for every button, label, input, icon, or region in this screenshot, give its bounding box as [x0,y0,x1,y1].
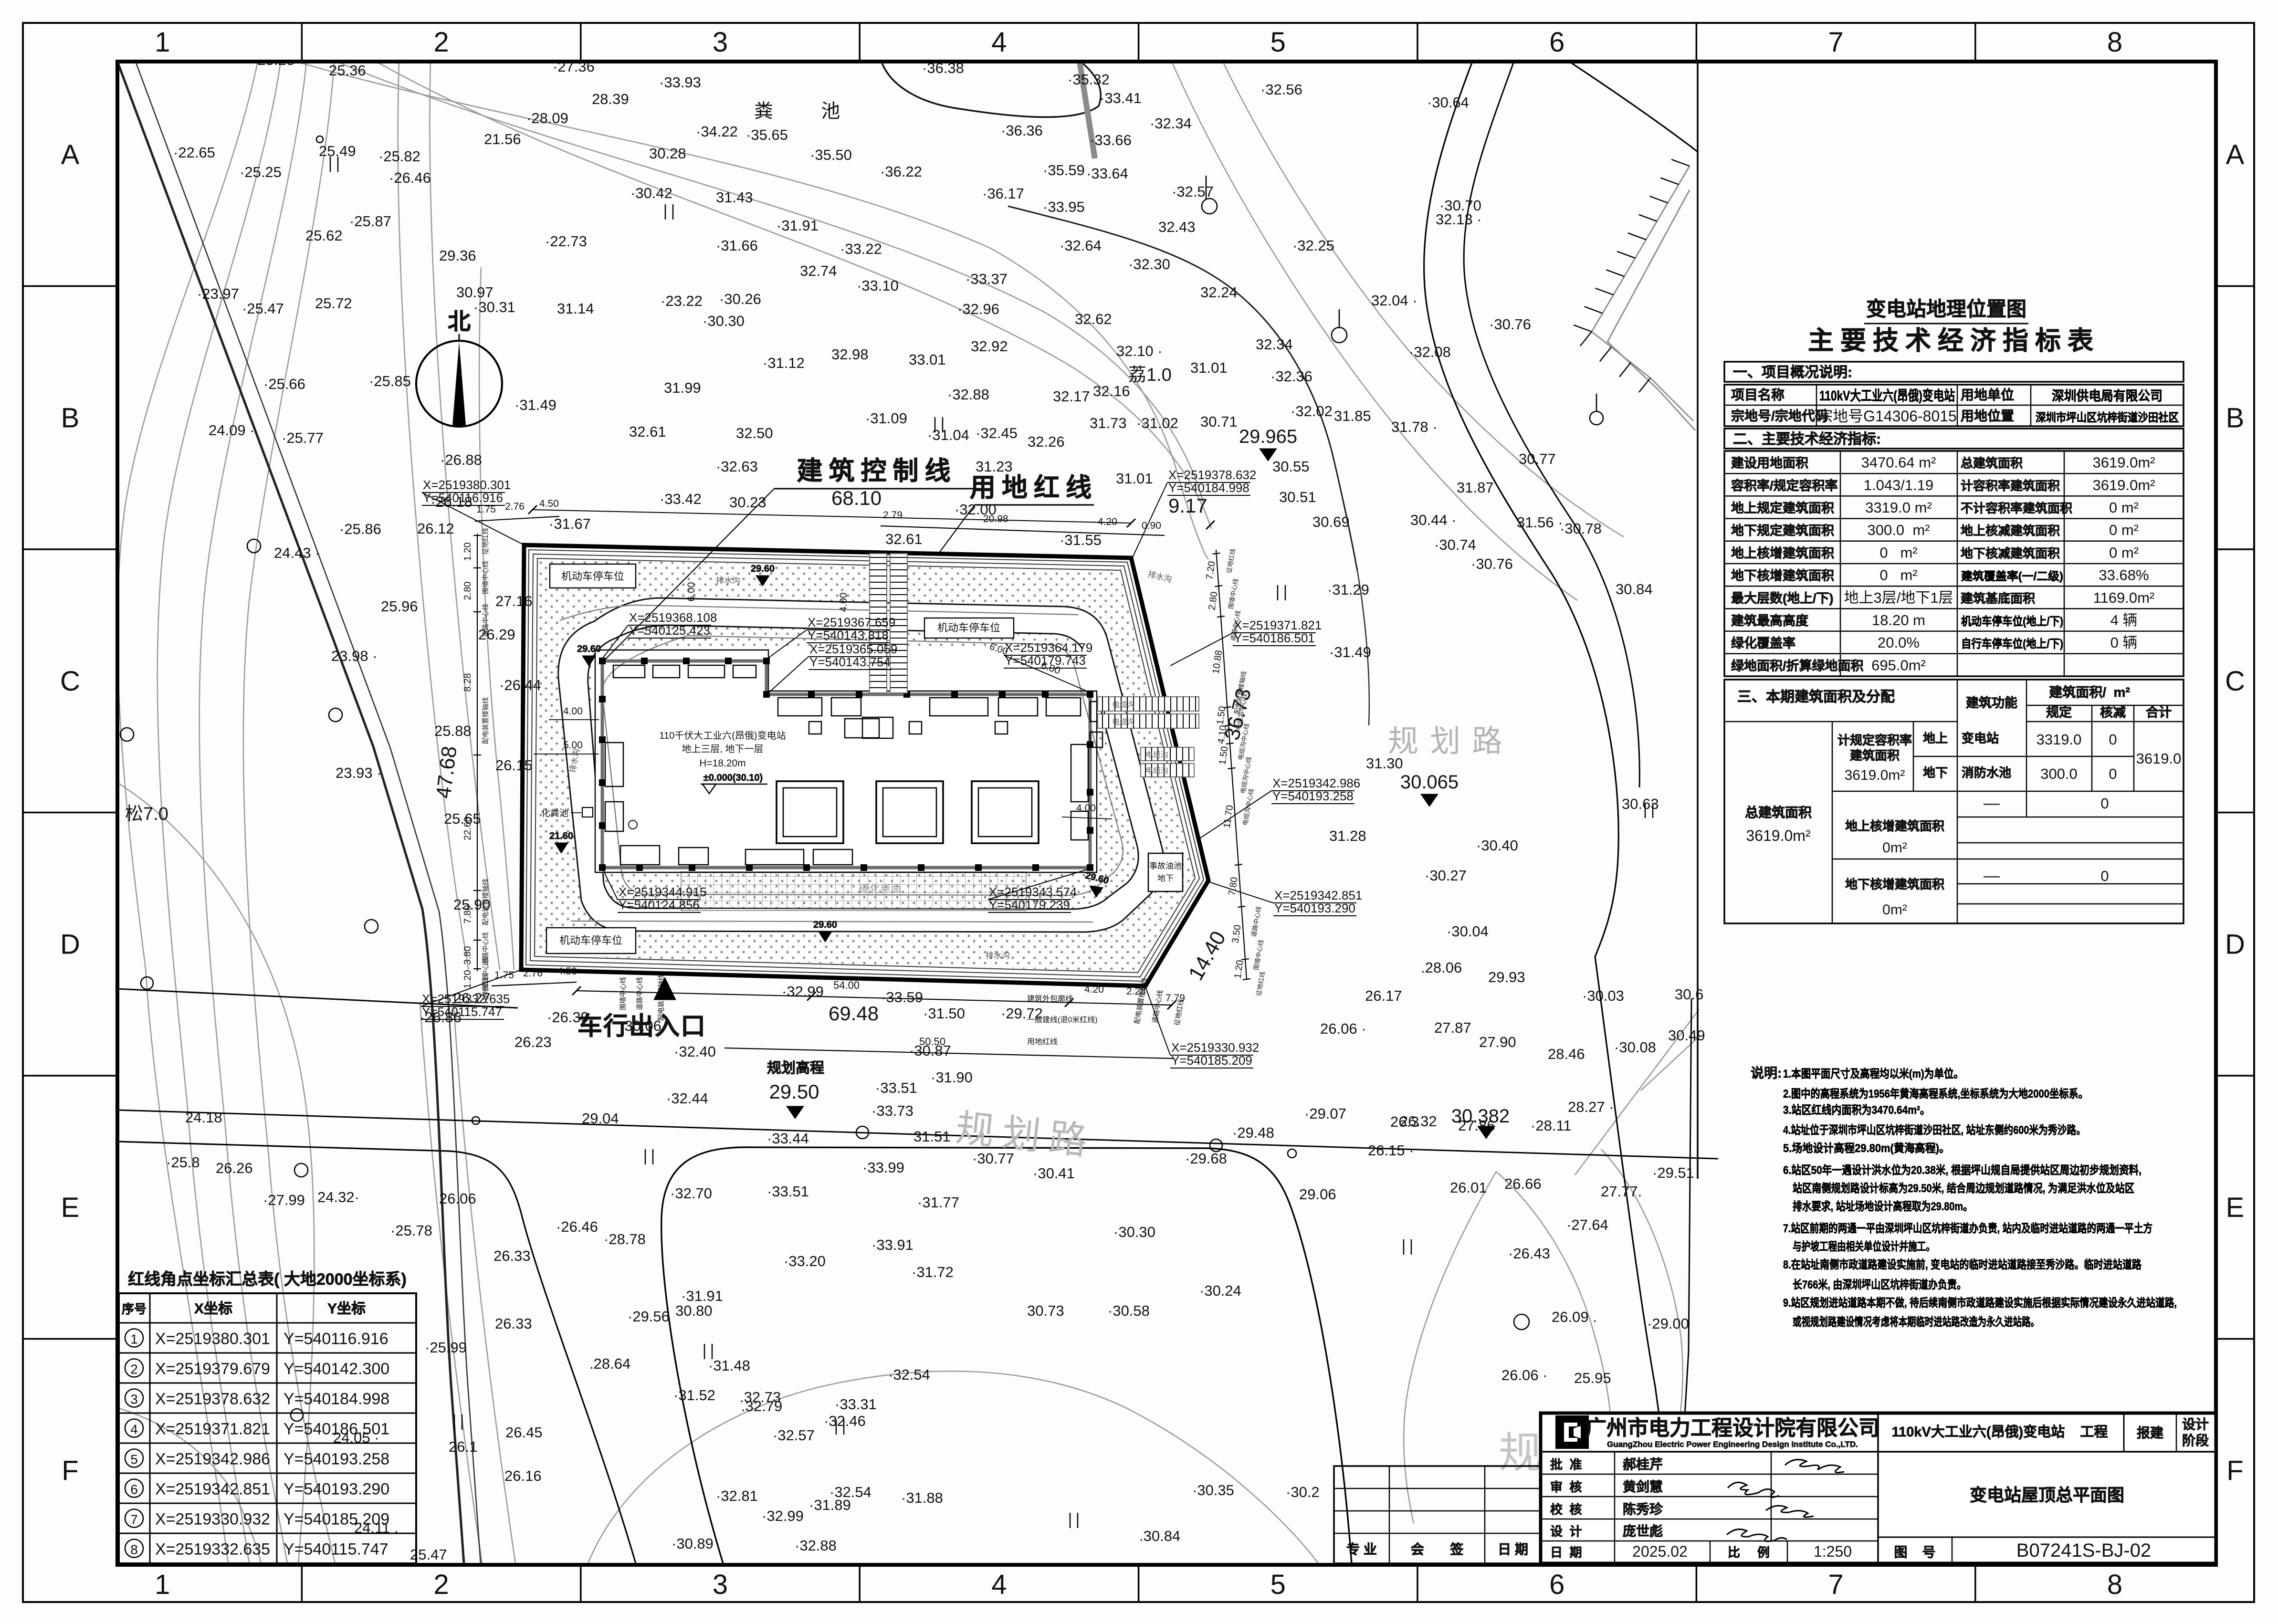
svg-text:建筑面积: 建筑面积 [1850,748,1900,763]
svg-text:变电站地理位置图: 变电站地理位置图 [1866,298,2026,320]
svg-text:30.71: 30.71 [1200,413,1238,430]
svg-text:27.87: 27.87 [1434,1019,1471,1036]
svg-text:32.98: 32.98 [831,346,869,363]
svg-text:·31.12: ·31.12 [763,355,805,371]
svg-text:·34.22: ·34.22 [696,123,738,140]
svg-text:·32.30: ·32.30 [1128,256,1170,272]
svg-text:·31.67: ·31.67 [549,515,591,532]
svg-text:D: D [60,929,80,960]
svg-text:·31.72: ·31.72 [912,1264,954,1280]
svg-text:26.12: 26.12 [417,520,454,537]
svg-text:26.23: 26.23 [514,1034,552,1050]
svg-text:25.95: 25.95 [1574,1370,1611,1386]
svg-text:·26.88: ·26.88 [440,451,482,468]
svg-text:用地位置: 用地位置 [1961,408,2014,423]
svg-text:·25.8: ·25.8 [166,1154,200,1171]
svg-text:X=2519342.851: X=2519342.851 [1274,888,1362,902]
svg-text:·22.73: ·22.73 [545,233,587,250]
svg-text:用地红线: 用地红线 [970,473,1098,502]
svg-text:X=2519364.179: X=2519364.179 [1005,640,1092,655]
svg-text:日 期: 日 期 [1498,1542,1528,1557]
svg-text:6.站区50年一遇设计洪水位为20.38米, 根据坪山规自局: 6.站区50年一遇设计洪水位为20.38米, 根据坪山规自局提供站区周边初步规划… [1783,1163,2142,1177]
svg-text:配电装置楼轴线: 配电装置楼轴线 [482,697,489,744]
svg-text:用地单位: 用地单位 [1961,387,2014,402]
svg-text:23.93 ·: 23.93 · [336,765,382,781]
svg-text:30.77: 30.77 [1519,451,1556,467]
svg-text:B07241S-BJ-02: B07241S-BJ-02 [2016,1540,2151,1561]
svg-text:X=2519371.821: X=2519371.821 [155,1420,270,1438]
svg-text:建筑控制线: 建筑控制线 [797,457,957,485]
svg-text:·25.77: ·25.77 [282,430,324,446]
svg-text:32.50: 32.50 [736,425,773,441]
svg-text:·35.65: ·35.65 [746,126,788,143]
svg-text:地下核减建筑面积: 地下核减建筑面积 [1961,546,2060,560]
svg-text:0 m²: 0 m² [2109,499,2139,516]
svg-text:机动车停车位(地上/下): 机动车停车位(地上/下) [1961,615,2063,628]
svg-text:3: 3 [713,27,728,58]
svg-text:1: 1 [130,1332,138,1347]
svg-text:·32.81: ·32.81 [716,1488,758,1504]
svg-text:X=2519368.108: X=2519368.108 [629,610,717,625]
svg-text:26.17: 26.17 [1365,987,1402,1004]
svg-text:26.45: 26.45 [505,1424,543,1441]
svg-text:图 号: 图 号 [1894,1545,1935,1560]
svg-text:30.63: 30.63 [1622,796,1659,812]
svg-text:合计: 合计 [2146,705,2172,720]
svg-text:用地红线: 用地红线 [1027,1037,1058,1046]
svg-text:设计: 设计 [2182,1417,2209,1432]
svg-text:·25.82: ·25.82 [378,148,420,165]
svg-text:30.065: 30.065 [1400,772,1459,793]
svg-text:9.17: 9.17 [1168,494,1207,517]
svg-text:·31.49: ·31.49 [1329,644,1371,660]
svg-text:25.72: 25.72 [315,295,352,312]
svg-text:31.56 ·: 31.56 · [1517,514,1563,531]
svg-text:·29.56: ·29.56 [628,1308,670,1325]
svg-text:4.50: 4.50 [539,498,559,509]
svg-text:32.13 ·: 32.13 · [1436,211,1482,228]
svg-text:69.48: 69.48 [829,1002,879,1025]
svg-text:25.49: 25.49 [319,143,356,159]
svg-text:0m²: 0m² [1882,840,1907,856]
svg-text:·31.55: ·31.55 [1060,532,1102,548]
svg-text:地下规定建筑面积: 地下规定建筑面积 [1731,523,1834,538]
svg-text:·32.36: ·32.36 [1270,368,1312,385]
svg-text:X=2519330.932: X=2519330.932 [1171,1040,1259,1055]
svg-text:4.站址位于深圳市坪山区坑梓街道沙田社区, 站址东侧约600: 4.站址位于深圳市坪山区坑梓街道沙田社区, 站址东侧约600米为秀沙路。 [1783,1123,2086,1137]
svg-text:0: 0 [2100,795,2109,812]
svg-text:机动车停车位: 机动车停车位 [937,622,1000,634]
svg-text:北: 北 [448,309,471,335]
svg-text:·27.99: ·27.99 [263,1192,305,1208]
svg-text:X=2519332.635: X=2519332.635 [155,1540,270,1559]
svg-text:·32.88: ·32.88 [947,386,989,403]
svg-text:3: 3 [713,1569,728,1600]
svg-text:32.16: 32.16 [1093,383,1130,399]
svg-text:变电站: 变电站 [1962,731,1999,745]
svg-text:26.26: 26.26 [216,1160,253,1176]
svg-text:Y=540185.209: Y=540185.209 [283,1510,389,1529]
svg-text:·32.25: ·32.25 [1292,237,1334,254]
svg-text:报建: 报建 [2137,1425,2163,1440]
svg-text:说明:: 说明: [1751,1066,1782,1080]
svg-text:·33.51: ·33.51 [875,1079,917,1096]
svg-text:25.36: 25.36 [329,62,366,79]
svg-text:30.73: 30.73 [1027,1302,1064,1319]
svg-text:·25.87: ·25.87 [349,213,391,230]
svg-text:·32.44: ·32.44 [666,1090,708,1107]
svg-text:·27.64: ·27.64 [1566,1216,1608,1233]
svg-text:A: A [61,139,80,170]
svg-text:0 m²: 0 m² [2109,522,2139,538]
svg-text:建设用地面积: 建设用地面积 [1731,456,1808,471]
svg-text:3619.0m²: 3619.0m² [2093,477,2155,493]
svg-text:·32.96: ·32.96 [957,301,999,317]
svg-text:2.图中的高程系统为1956年黄海高程系统,坐标系统为大地2: 2.图中的高程系统为1956年黄海高程系统,坐标系统为大地2000坐标系。 [1783,1087,2088,1100]
svg-text:20.0%: 20.0% [1878,634,1920,651]
svg-text:31.99: 31.99 [664,379,701,396]
svg-text:8.28: 8.28 [462,673,473,692]
svg-text:·31.29: ·31.29 [1327,581,1369,598]
svg-text:.28.64: .28.64 [589,1355,630,1372]
svg-text:·23.97: ·23.97 [197,285,239,302]
svg-text:X=2519332.635: X=2519332.635 [422,992,510,1006]
svg-text:25.96: 25.96 [381,598,418,615]
svg-text:22.60: 22.60 [462,817,473,840]
svg-text:专 业: 专 业 [1346,1542,1377,1557]
svg-text:庞世彪: 庞世彪 [1623,1524,1663,1539]
svg-text:阶段: 阶段 [2182,1433,2209,1448]
svg-text:26.06 ·: 26.06 · [1501,1367,1548,1383]
svg-text:4.20: 4.20 [1098,516,1117,527]
svg-text:·30.24: ·30.24 [1199,1282,1241,1299]
svg-text:0: 0 [2109,731,2117,748]
svg-text:与护坡工程由相关单位设计并施工。: 与护坡工程由相关单位设计并施工。 [1793,1240,1935,1253]
svg-text:31.28: 31.28 [1329,828,1366,844]
svg-text:·29.48: ·29.48 [1232,1124,1274,1141]
svg-text:28.39: 28.39 [592,91,629,107]
svg-text:2.76: 2.76 [523,968,543,979]
svg-text:26.3: 26.3 [1390,1113,1419,1130]
svg-text:30.44 ·: 30.44 · [1410,512,1457,528]
svg-text:·30.04: ·30.04 [1447,923,1489,940]
svg-text:·31.04: ·31.04 [927,427,969,443]
svg-text:2.80: 2.80 [462,582,473,600]
svg-text:规划路: 规划路 [1388,724,1514,758]
svg-text:26.06: 26.06 [439,1190,476,1207]
svg-text:H=18.20m: H=18.20m [699,758,745,769]
svg-text:·30.42: ·30.42 [630,185,672,201]
svg-text:X=2519378.632: X=2519378.632 [1168,468,1256,482]
svg-text:32.10 ·: 32.10 · [1116,343,1163,359]
svg-text:C: C [60,666,80,697]
svg-text:·31.91: ·31.91 [777,217,819,234]
svg-text:26.1: 26.1 [449,1438,477,1455]
svg-text:·33.20: ·33.20 [784,1253,826,1269]
svg-text:3619.0m²: 3619.0m² [1746,827,1811,844]
svg-text:Y=540116.916: Y=540116.916 [283,1330,388,1348]
svg-text:·32.56: ·32.56 [1260,81,1302,98]
svg-text:32.17: 32.17 [1053,388,1090,405]
svg-text:2: 2 [433,1569,449,1600]
svg-text:7.站区前期的两通一平由深圳坪山区坑梓街道办负责, 站内及临: 7.站区前期的两通一平由深圳坪山区坑梓街道办负责, 站内及临时进站道路的两通一平… [1783,1222,2152,1235]
svg-text:·30.26: ·30.26 [719,291,761,307]
svg-text:计规定容积率: 计规定容积率 [1837,733,1912,747]
svg-text:地上规定建筑面积: 地上规定建筑面积 [1731,501,1834,515]
svg-text:消防水池: 消防水池 [1962,765,2011,780]
svg-text:松7.0: 松7.0 [125,804,168,824]
svg-text:3619.0m²: 3619.0m² [1845,767,1905,783]
svg-text:一般建线(退0米红线): 一般建线(退0米红线) [1027,1016,1098,1024]
svg-text:31.78 ·: 31.78 · [1391,419,1438,435]
svg-text:·33.73: ·33.73 [871,1102,913,1119]
svg-text:4: 4 [991,1569,1007,1600]
svg-text:·31.89: ·31.89 [809,1497,851,1513]
svg-text:·28.78: ·28.78 [604,1231,646,1247]
svg-text:8: 8 [2107,27,2122,58]
svg-text:项目名称: 项目名称 [1731,388,1785,402]
svg-text:·33.10: ·33.10 [857,277,899,294]
svg-text:·30.76: ·30.76 [1489,316,1531,333]
svg-text:29.50: 29.50 [769,1080,819,1103]
svg-text:30.69: 30.69 [1312,513,1350,530]
svg-text:·30.30: ·30.30 [1113,1224,1155,1240]
svg-text:X=2519330.932: X=2519330.932 [155,1510,270,1529]
svg-text:规划高程: 规划高程 [767,1060,824,1076]
svg-text:计容积率建筑面积: 计容积率建筑面积 [1961,479,2060,493]
svg-text:地上核增建筑面积: 地上核增建筑面积 [1845,819,1944,833]
svg-text:32.04 ·: 32.04 · [1371,292,1417,309]
svg-text:·30.03: ·30.03 [1582,987,1624,1004]
svg-text:695.0m²: 695.0m² [1871,657,1926,673]
svg-text:·33.59: ·33.59 [881,989,923,1006]
svg-text:X=2519379.679: X=2519379.679 [155,1360,270,1378]
svg-text:27.90: 27.90 [1479,1034,1516,1050]
svg-text:硬化屋面: 硬化屋面 [859,883,901,895]
svg-text:建筑外包廓线: 建筑外包廓线 [1027,995,1073,1003]
svg-text:·33.31: ·33.31 [835,1396,877,1413]
svg-text:4.00: 4.00 [838,593,849,612]
svg-text:排水沟: 排水沟 [716,576,740,586]
svg-text:C: C [2225,666,2245,697]
svg-text:·31.52: ·31.52 [673,1387,715,1404]
svg-text:30.51: 30.51 [1279,489,1316,505]
svg-text:31.85: 31.85 [1334,408,1371,424]
svg-text:·31.02: ·31.02 [1136,415,1178,431]
svg-text:27.77.: 27.77. [1601,1183,1642,1200]
svg-text:9.站区规划进站道路本期不做, 待后续南侧市政道路建设实施后: 9.站区规划进站道路本期不做, 待后续南侧市政道路建设实施后根据实际情况建设永久… [1783,1296,2177,1310]
svg-text:29.04: 29.04 [582,1110,619,1127]
svg-text:3.80: 3.80 [462,946,473,965]
svg-text:配电装置楼轴线: 配电装置楼轴线 [482,879,489,925]
svg-text:Y=540115.747: Y=540115.747 [283,1540,388,1559]
svg-text:·35.32: ·35.32 [1068,71,1110,88]
svg-text:50.50: 50.50 [919,1036,945,1048]
svg-text:·29.51: ·29.51 [1652,1164,1694,1181]
svg-text:0.90: 0.90 [1142,520,1161,531]
svg-text:.32.79: .32.79 [741,1398,782,1414]
svg-text:3319.0: 3319.0 [2037,731,2082,748]
svg-text:54.00: 54.00 [833,979,860,991]
svg-text:·32.40: ·32.40 [674,1043,716,1060]
svg-text:29.60: 29.60 [577,644,601,654]
svg-text:主要技术经济指标表: 主要技术经济指标表 [1808,326,2100,355]
svg-text:X=2519371.821: X=2519371.821 [1234,618,1322,632]
svg-text:0 m²: 0 m² [1879,544,1917,561]
svg-text:1:250: 1:250 [1814,1543,1852,1560]
svg-text:道路中心线: 道路中心线 [636,977,643,1010]
svg-text:33.01: 33.01 [909,351,946,368]
svg-text:·30.30: ·30.30 [703,313,745,329]
svg-text:·33.91: ·33.91 [871,1236,913,1253]
svg-text:·31.90: ·31.90 [931,1069,973,1086]
svg-text:4.00: 4.00 [563,706,583,717]
svg-text:2.79: 2.79 [883,510,903,521]
svg-text:日 期: 日 期 [1550,1545,1582,1560]
svg-text:·32.57: ·32.57 [1172,183,1214,200]
svg-text:31.30: 31.30 [1366,755,1403,772]
svg-text:·30.31: ·30.31 [473,299,515,315]
svg-text:GuangZhou Electric Power Engin: GuangZhou Electric Power Engineering Des… [1607,1440,1858,1449]
svg-text:·22.65: ·22.65 [173,144,215,161]
svg-text:序号: 序号 [122,1302,147,1316]
svg-text:32.74: 32.74 [800,262,837,279]
svg-text:一、项目概况说明:: 一、项目概况说明: [1733,365,1852,380]
svg-text:110kV大工业六(昂俄)变电站 工程: 110kV大工业六(昂俄)变电站 工程 [1892,1424,2108,1440]
svg-text:8: 8 [130,1542,138,1557]
svg-text:X=2519344.915: X=2519344.915 [619,885,706,899]
svg-text:设 计: 设 计 [1550,1524,1582,1539]
svg-text:排水沟: 排水沟 [986,951,1010,960]
svg-text:·31.66: ·31.66 [716,237,758,254]
svg-text:总建筑面积: 总建筑面积 [1961,456,2023,471]
svg-text:·25.99: ·25.99 [425,1339,467,1356]
svg-text:道路中心线: 道路中心线 [482,604,489,637]
svg-text:排水要求, 站址场地设计高程取为29.80m。: 排水要求, 站址场地设计高程取为29.80m。 [1793,1200,1973,1213]
svg-text:·33.22: ·33.22 [840,241,882,257]
svg-text:·33.93: ·33.93 [659,74,701,91]
svg-text:24.43 ·: 24.43 · [274,545,320,561]
svg-text:·32.99: ·32.99 [782,983,824,1000]
svg-text:宗地号G14306-8015: 宗地号G14306-8015 [1817,408,1957,425]
svg-text:1.本图平面尺寸及高程均以米(m)为单位。: 1.本图平面尺寸及高程均以米(m)为单位。 [1783,1067,1963,1080]
svg-text:5.场地设计高程29.80m(黄海高程)。: 5.场地设计高程29.80m(黄海高程)。 [1783,1142,1950,1155]
svg-text:·32.46: ·32.46 [824,1413,866,1429]
svg-text:·26.46: ·26.46 [389,169,431,186]
svg-text:Y坐标: Y坐标 [327,1301,366,1317]
svg-text:围墙中心线: 围墙中心线 [482,561,489,594]
svg-text:31.51: 31.51 [913,1128,951,1145]
svg-text:Y=540184.998: Y=540184.998 [283,1390,389,1408]
svg-text:·23.22: ·23.22 [661,293,703,309]
svg-text:2: 2 [130,1362,138,1377]
svg-text:·30.40: ·30.40 [1476,837,1518,854]
svg-text:建筑面积/ m²: 建筑面积/ m² [2049,685,2130,700]
svg-text:地下核增建筑面积: 地下核增建筑面积 [1845,877,1944,891]
svg-text:·25.25: ·25.25 [240,164,282,180]
svg-text:X=2519378.632: X=2519378.632 [155,1390,270,1408]
svg-text:29.93: 29.93 [1488,969,1525,985]
svg-text:3: 3 [130,1392,138,1407]
svg-text:4.00: 4.00 [1076,803,1096,814]
svg-text:最大层数(地上/下): 最大层数(地上/下) [1731,591,1833,606]
svg-text:三、本期建筑面积及分配: 三、本期建筑面积及分配 [1737,689,1895,705]
svg-text:8.在站址南侧市政道路建设实施前, 变电站的临时进站道路接至: 8.在站址南侧市政道路建设实施前, 变电站的临时进站道路接至秀沙路。临时进站道路 [1783,1258,2142,1271]
svg-text:地上三层, 地下一层: 地上三层, 地下一层 [682,744,763,754]
svg-text:3619.0: 3619.0 [2136,750,2182,767]
svg-text:2025.02: 2025.02 [1632,1543,1688,1560]
svg-text:26.06 ·: 26.06 · [1320,1020,1366,1037]
svg-text:地下: 地下 [1157,874,1174,883]
svg-text:·25.47: ·25.47 [242,300,284,317]
svg-text:陈秀珍: 陈秀珍 [1623,1501,1663,1517]
svg-text:4: 4 [130,1422,138,1437]
svg-text:建筑基底面积: 建筑基底面积 [1961,591,2035,606]
svg-text:·32.08: ·32.08 [1409,344,1451,360]
svg-text:1: 1 [155,1569,170,1600]
svg-text:·25.78: ·25.78 [390,1222,432,1239]
svg-text:地上核增建筑面积: 地上核增建筑面积 [1731,545,1834,560]
svg-text:2: 2 [433,27,449,58]
svg-text:7: 7 [1828,27,1843,58]
svg-text:地上: 地上 [1923,731,1948,745]
svg-text:6.00: 6.00 [686,582,697,602]
svg-text:.30.84: .30.84 [1139,1528,1180,1544]
svg-text:·30.64: ·30.64 [1427,94,1469,111]
svg-text:事故油池: 事故油池 [1149,861,1182,870]
svg-text:·36.17: ·36.17 [982,185,1024,202]
svg-text:荔1.0: 荔1.0 [1128,365,1172,385]
svg-text:·32.00: ·32.00 [955,501,997,518]
svg-text:0 辆: 0 辆 [2110,634,2138,651]
svg-text:容积率/规定容积率: 容积率/规定容积率 [1731,478,1838,493]
svg-text:1.20: 1.20 [462,970,473,989]
svg-text:4: 4 [991,27,1007,58]
svg-text:·33.41: ·33.41 [1100,90,1142,106]
svg-text:地下核增建筑面积: 地下核增建筑面积 [1731,568,1834,583]
svg-text:·31.50: ·31.50 [923,1005,965,1022]
svg-text:1.043/1.19: 1.043/1.19 [1864,477,1934,493]
svg-text:0m²: 0m² [1882,902,1907,918]
svg-text:X=2519342.851: X=2519342.851 [155,1480,270,1498]
svg-text:28.46: 28.46 [1548,1046,1585,1062]
svg-text:郝桂芹: 郝桂芹 [1623,1457,1663,1472]
svg-text:30.80: 30.80 [675,1302,713,1319]
svg-text:7: 7 [130,1512,138,1527]
svg-text:规定: 规定 [2046,705,2072,720]
svg-text:32.43: 32.43 [1158,219,1196,235]
svg-text:30.28: 30.28 [649,145,686,162]
svg-text:·25.66: ·25.66 [263,376,305,392]
svg-text:·30.78: ·30.78 [1560,520,1602,537]
svg-text:26.01: 26.01 [1450,1179,1487,1196]
svg-text:32.24: 32.24 [1200,284,1238,301]
svg-text:·32.88: ·32.88 [795,1537,837,1554]
svg-text:·35.59: ·35.59 [1043,162,1085,178]
svg-text:30.97: 30.97 [456,284,493,301]
svg-text:X=2519343.574: X=2519343.574 [989,885,1077,899]
svg-text:32.61: 32.61 [629,423,666,440]
svg-text:或视规划路建设情况考虑将本期临时进站路改造为永久进站路。: 或视规划路建设情况考虑将本期临时进站路改造为永久进站路。 [1793,1315,2039,1329]
svg-text:7: 7 [1828,1569,1843,1600]
svg-text:1169.0m²: 1169.0m² [2093,589,2155,606]
svg-text:24.18: 24.18 [185,1109,222,1126]
svg-text:·33.37: ·33.37 [966,271,1008,287]
svg-text:26.33: 26.33 [495,1315,532,1332]
svg-text:粪 池: 粪 池 [754,101,852,122]
svg-text:0: 0 [2109,765,2117,782]
svg-text:电缆沟: 电缆沟 [1112,718,1135,726]
